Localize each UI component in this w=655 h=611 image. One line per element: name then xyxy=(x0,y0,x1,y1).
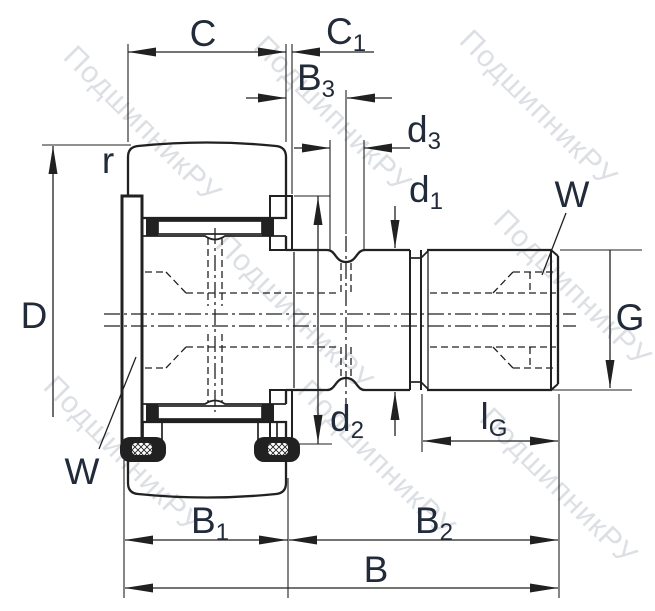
roller xyxy=(158,221,262,234)
dim-B2: B2 xyxy=(289,500,558,546)
arrowhead xyxy=(49,146,58,174)
arrowhead xyxy=(314,415,323,443)
arrowhead xyxy=(125,536,153,545)
end-washer xyxy=(146,404,158,422)
dim-label-W-flange: W xyxy=(65,451,100,492)
arrowhead xyxy=(530,437,558,446)
dim-C: C xyxy=(128,13,286,57)
arrowhead xyxy=(347,94,375,103)
drawing-canvas: ПодшипникРУ ПодшипникРУ ПодшипникРУ Подш… xyxy=(0,0,655,611)
arrowhead xyxy=(314,197,323,225)
end-washer xyxy=(146,218,158,236)
arrowhead xyxy=(125,584,153,593)
end-washer xyxy=(262,404,274,422)
end-plate xyxy=(122,196,142,444)
watermark-text: ПодшипникРУ xyxy=(453,24,623,194)
dim-label-C1: C1 xyxy=(326,11,366,57)
roller xyxy=(158,406,262,419)
arrowhead xyxy=(258,94,286,103)
arrowhead xyxy=(259,536,287,545)
arrowhead xyxy=(391,392,400,420)
dim-label-B3: B3 xyxy=(297,57,335,103)
arrowhead xyxy=(391,220,400,248)
end-washer xyxy=(262,218,274,236)
arrowhead xyxy=(128,48,156,57)
arrowhead xyxy=(606,360,615,388)
dim-C1: C1 xyxy=(292,11,374,57)
dim-label-d2: d2 xyxy=(330,398,364,444)
dim-B: B xyxy=(125,549,558,593)
dim-label-d3: d3 xyxy=(407,109,441,155)
bearing-technical-drawing: ПодшипникРУ ПодшипникРУ ПодшипникРУ Подш… xyxy=(0,0,655,611)
dim-label-r: r xyxy=(102,140,114,181)
dim-label-G: G xyxy=(616,297,645,338)
dim-B1: B1 xyxy=(125,500,288,546)
dim-label-W-thread: W xyxy=(555,174,590,215)
arrowhead xyxy=(289,536,317,545)
radius-r-label: r xyxy=(102,140,114,181)
dim-label-B1: B1 xyxy=(191,500,229,546)
arrowhead xyxy=(530,536,558,545)
dim-lG: lG xyxy=(423,396,558,446)
dim-label-D: D xyxy=(21,295,48,336)
dim-label-C: C xyxy=(190,13,217,54)
arrowhead xyxy=(530,584,558,593)
arrowhead xyxy=(423,437,451,446)
dim-label-B: B xyxy=(364,549,389,590)
dim-label-d1: d1 xyxy=(409,169,443,215)
arrowhead xyxy=(302,144,330,153)
dim-D: D xyxy=(21,146,58,417)
